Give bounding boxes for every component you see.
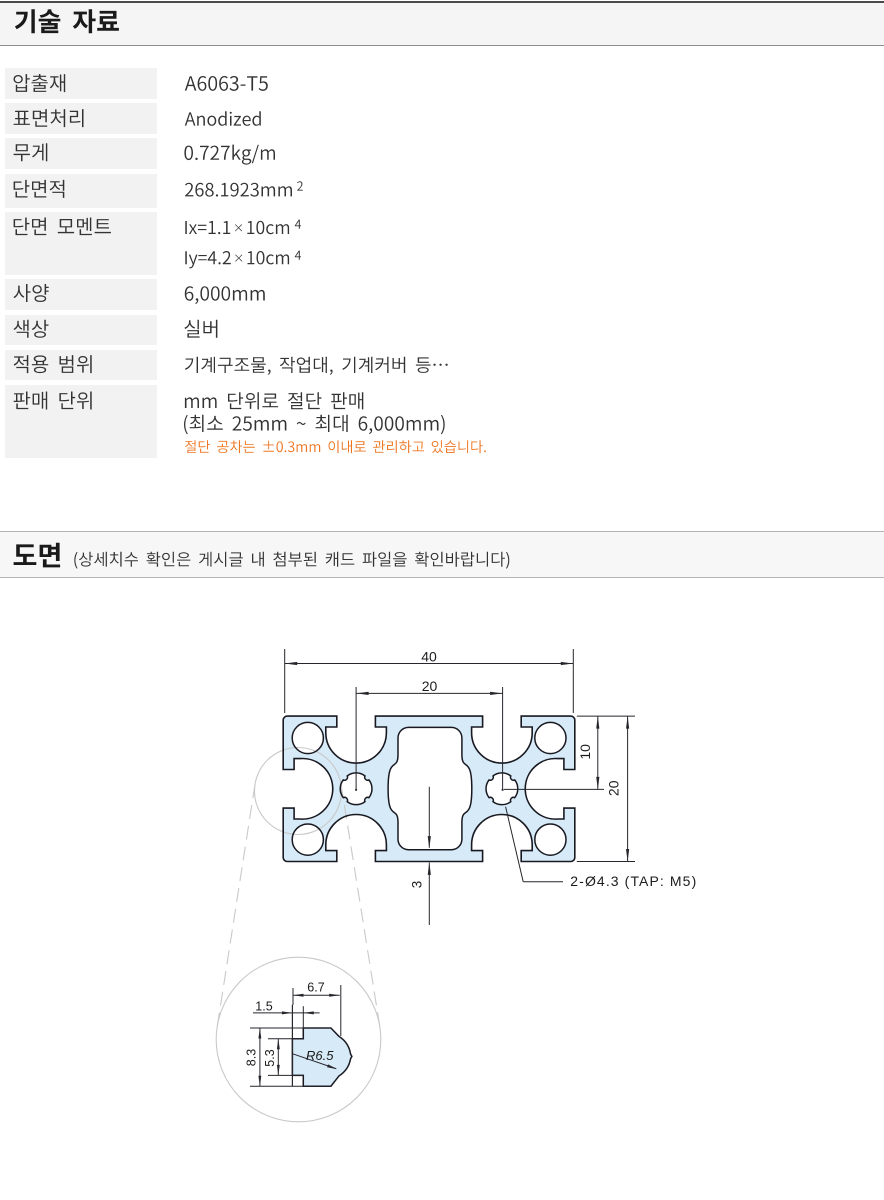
svg-text:1.5: 1.5 [255, 1000, 272, 1014]
svg-text:10: 10 [577, 744, 593, 760]
svg-text:20: 20 [606, 780, 622, 796]
svg-text:5.3: 5.3 [263, 1049, 277, 1066]
svg-text:40: 40 [421, 648, 437, 664]
svg-text:2-Ø4.3 (TAP: M5): 2-Ø4.3 (TAP: M5) [570, 873, 697, 889]
svg-text:8.3: 8.3 [245, 1049, 259, 1066]
svg-text:6.7: 6.7 [307, 981, 324, 995]
svg-text:3: 3 [410, 881, 425, 889]
svg-text:R6.5: R6.5 [306, 1048, 334, 1063]
svg-text:20: 20 [422, 678, 438, 694]
